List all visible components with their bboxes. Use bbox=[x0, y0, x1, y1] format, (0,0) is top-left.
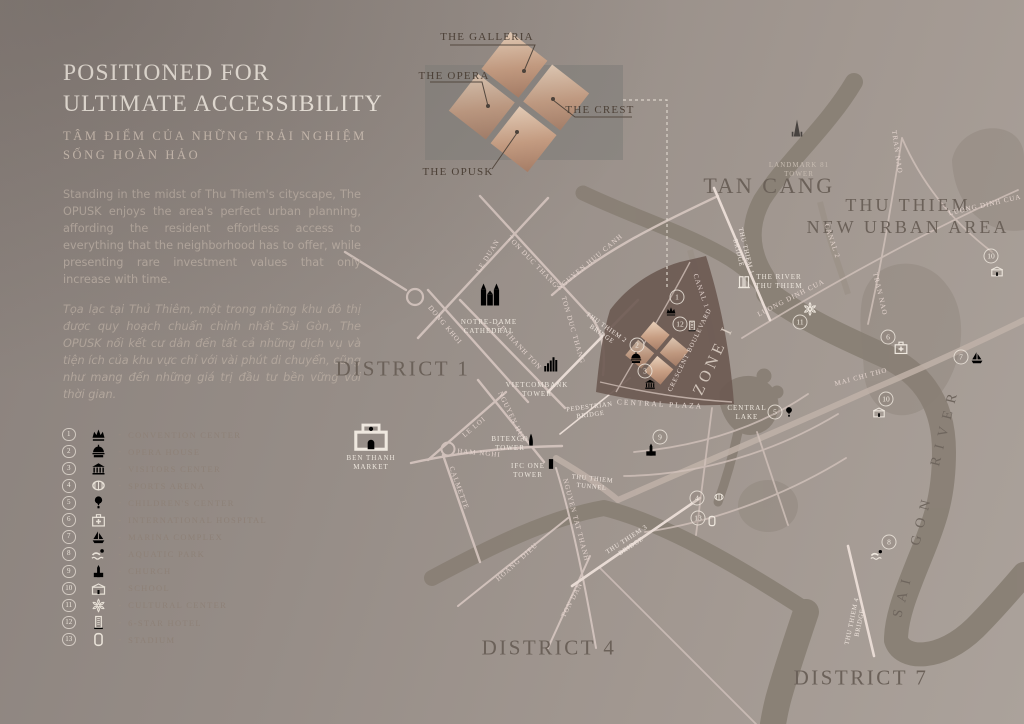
hospital-icon bbox=[91, 513, 106, 528]
school-icon bbox=[867, 406, 891, 419]
church-icon bbox=[641, 443, 661, 458]
notre-dame-label: NOTRE-DAMECATHEDRAL bbox=[461, 318, 517, 336]
stadium-icon bbox=[706, 514, 718, 529]
page-subtitle: TÂM ĐIỂM CỦA NHỮNG TRẢI NGHIỆM SỐNG HOÀN… bbox=[63, 127, 367, 165]
district-1-label: DISTRICT 1 bbox=[336, 357, 471, 382]
legend-row: 8-AQUATIC PARK bbox=[62, 546, 267, 563]
church-icon bbox=[91, 564, 106, 579]
ifc-one-label: IFC ONETOWER bbox=[511, 462, 545, 480]
visitors-center-icon bbox=[91, 461, 106, 476]
childrens-center-icon bbox=[783, 405, 795, 419]
aquatic-park-icon bbox=[91, 547, 106, 562]
the-river-thu-thiem-label: THE RIVERTHU THIEM bbox=[755, 273, 802, 291]
inset-label-crest: THE CREST bbox=[565, 104, 634, 116]
legend-row: 7-MARINA COMPLEX bbox=[62, 529, 267, 546]
map-legend: 1-CONVENTION CENTER 2-OPERA HOUSE 3-VISI… bbox=[62, 426, 267, 648]
ben-thanh-market-icon bbox=[352, 414, 390, 456]
inset-masterplan bbox=[425, 32, 632, 172]
marina-icon bbox=[91, 530, 106, 545]
convention-icon bbox=[658, 306, 684, 317]
legend-row: 11-CULTURAL CENTER bbox=[62, 597, 267, 614]
inset-connector-line bbox=[623, 100, 667, 288]
central-lake-label: CENTRALLAKE bbox=[727, 404, 766, 422]
sports-arena-icon bbox=[91, 478, 106, 493]
opera-house-icon bbox=[628, 352, 645, 365]
school-icon bbox=[985, 265, 1009, 278]
legend-row: 3-VISITORS CENTER bbox=[62, 460, 267, 477]
marker-stadium: 13 bbox=[691, 511, 706, 526]
inset-label-opera: THE OPERA bbox=[419, 70, 490, 82]
district-7-label: DISTRICT 7 bbox=[794, 666, 929, 691]
aquatic-park-icon bbox=[867, 548, 887, 562]
cultural-center-icon bbox=[91, 598, 106, 613]
marker-marina-complex: 7 bbox=[954, 350, 969, 365]
thu-thiem-area-label: THU THIEMNEW URBAN AREA bbox=[807, 194, 1010, 238]
inset-label-galleria: THE GALLERIA bbox=[440, 31, 534, 43]
ifc-one-tower-icon bbox=[545, 449, 558, 479]
legend-row: 5-CHILDREN'S CENTER bbox=[62, 494, 267, 511]
intro-paragraph-en: Standing in the midst of Thu Thiem's cit… bbox=[63, 186, 361, 288]
legend-row: 10-SCHOOL bbox=[62, 580, 267, 597]
legend-row: 1-CONVENTION CENTER bbox=[62, 426, 267, 443]
stadium-icon bbox=[91, 632, 106, 647]
hospital-icon bbox=[890, 341, 912, 356]
marker-opera-house: 2 bbox=[630, 338, 645, 353]
marker-convention-center: 1 bbox=[670, 290, 685, 305]
school-icon bbox=[91, 581, 106, 596]
legend-row: 12-6-STAR HOTEL bbox=[62, 614, 267, 631]
marker-school: 10 bbox=[984, 249, 999, 264]
childrens-center-icon bbox=[91, 495, 106, 510]
intro-paragraph-vi: Tọa lạc tại Thủ Thiêm, một trong những k… bbox=[63, 301, 361, 403]
legend-row: 2-OPERA HOUSE bbox=[62, 443, 267, 460]
vietcombank-label: VIETCOMBANKTOWER bbox=[506, 381, 569, 399]
marker-visitors-center: 3 bbox=[638, 364, 653, 379]
cultural-center-icon bbox=[803, 302, 818, 317]
notre-dame-cathedral-icon bbox=[476, 273, 504, 317]
legend-row: 6-INTERNATIONAL HOSPITAL bbox=[62, 511, 267, 528]
marker-school: 10 bbox=[879, 392, 894, 407]
legend-row: 13-STADIUM bbox=[62, 631, 267, 648]
page-title: POSITIONED FOR ULTIMATE ACCESSIBILITY bbox=[63, 58, 383, 120]
marker-childrens-center: 5 bbox=[768, 405, 783, 420]
brochure-page: POSITIONED FOR ULTIMATE ACCESSIBILITY TÂ… bbox=[0, 0, 1024, 724]
district-4-label: DISTRICT 4 bbox=[482, 636, 617, 661]
inset-label-opusk: THE OPUSK bbox=[423, 166, 494, 178]
convention-icon bbox=[91, 427, 106, 442]
hotel-icon bbox=[686, 318, 698, 335]
sports-arena-icon bbox=[709, 492, 729, 503]
marker-cultural-center: 11 bbox=[793, 315, 808, 330]
landmark-81-label: LANDMARK 81TOWER bbox=[769, 161, 829, 179]
hotel-icon bbox=[91, 615, 106, 630]
ben-thanh-label: BEN THANHMARKET bbox=[346, 454, 395, 472]
legend-row: 4-SPORTS ARENA bbox=[62, 477, 267, 494]
visitors-center-icon bbox=[639, 378, 661, 390]
bitexco-label: BITEXCOTOWER bbox=[491, 435, 528, 453]
vietcombank-tower-icon bbox=[541, 345, 561, 383]
marker-sports-arena: 4 bbox=[690, 491, 705, 506]
opera-house-icon bbox=[91, 444, 106, 459]
the-river-thu-thiem-icon bbox=[737, 273, 752, 291]
legend-row: 9-CHURCH bbox=[62, 563, 267, 580]
marina-icon bbox=[970, 351, 985, 365]
landmark-81-icon bbox=[787, 101, 807, 157]
